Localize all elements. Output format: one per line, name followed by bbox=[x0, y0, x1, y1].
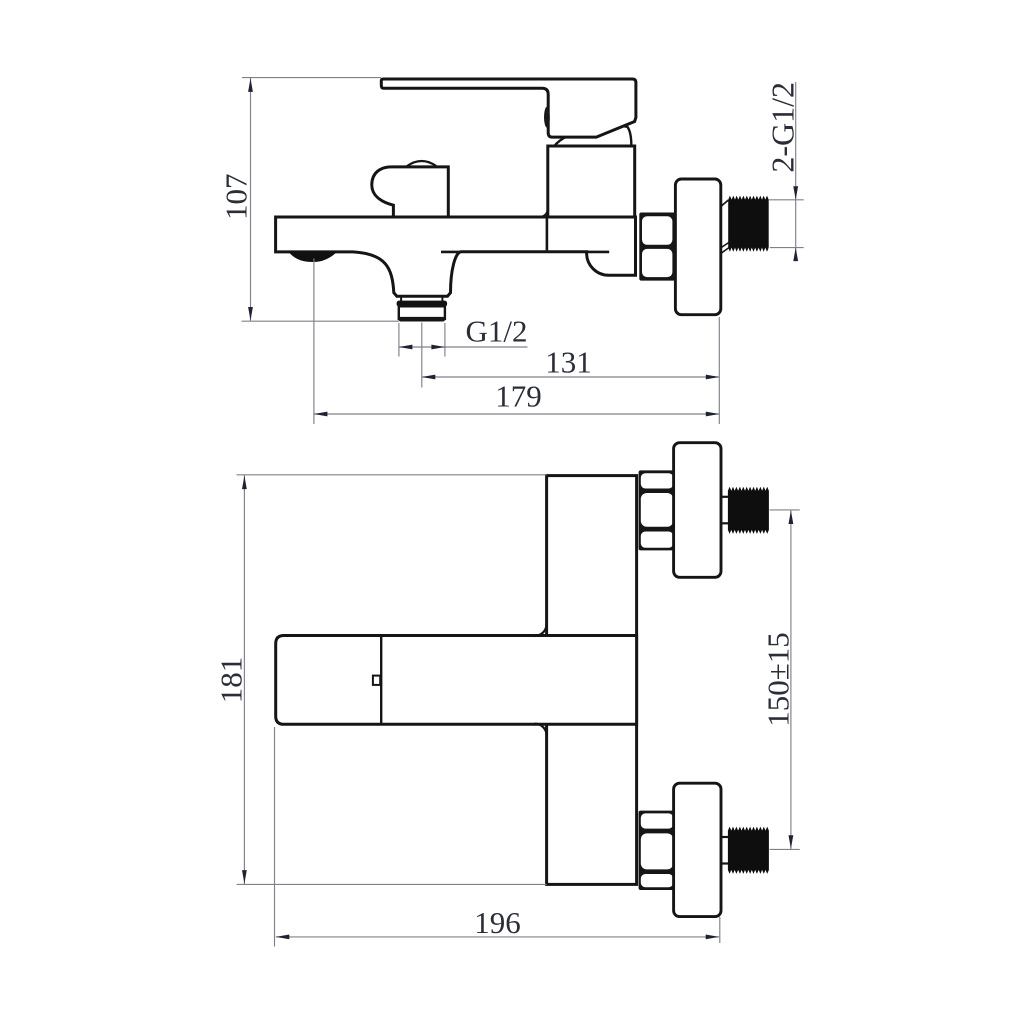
svg-text:G1/2: G1/2 bbox=[466, 314, 528, 349]
svg-text:181: 181 bbox=[213, 657, 248, 704]
svg-text:107: 107 bbox=[219, 174, 254, 221]
svg-text:131: 131 bbox=[545, 345, 592, 380]
svg-text:179: 179 bbox=[495, 379, 542, 414]
svg-text:2-G1/2: 2-G1/2 bbox=[765, 82, 801, 173]
svg-text:150±15: 150±15 bbox=[761, 632, 796, 727]
svg-text:196: 196 bbox=[474, 905, 521, 940]
